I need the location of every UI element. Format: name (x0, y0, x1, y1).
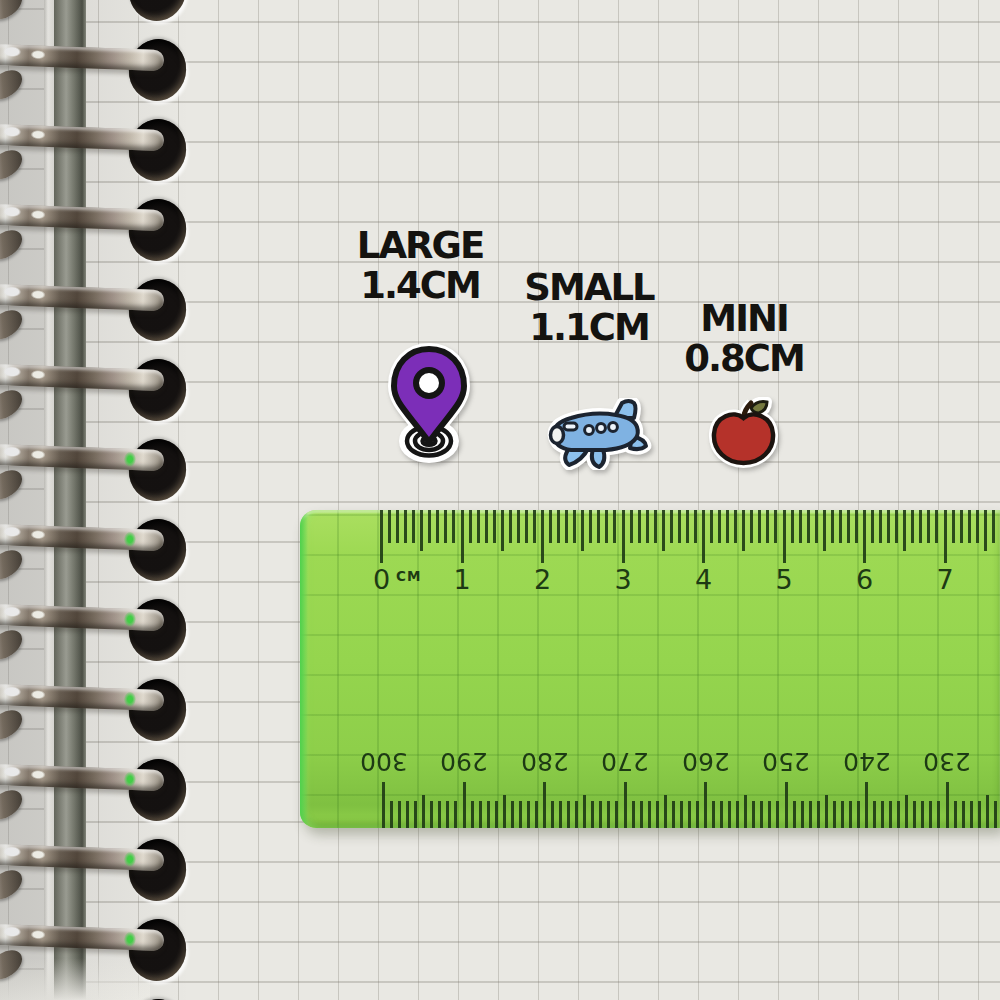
ruler-tick-top (758, 510, 761, 543)
ruler-tick-bottom (664, 795, 667, 828)
ruler-tick-bottom (495, 801, 498, 828)
ruler-tick-bottom (607, 801, 610, 828)
ruler-tick-bottom (704, 782, 707, 828)
ruler-tick-top (742, 510, 745, 551)
ruler-tick-bottom (583, 795, 586, 828)
ruler-tick-bottom (994, 801, 997, 828)
ruler-tick-bottom (728, 801, 731, 828)
ruler-tick-bottom (873, 801, 876, 828)
ruler-tick-bottom (833, 801, 836, 828)
ruler-tick-top (694, 510, 697, 543)
ruler-tick-bottom (825, 795, 828, 828)
ruler-tick-top (380, 510, 383, 563)
ruler-mm-number: 270 (593, 747, 657, 776)
ruler-tick-bottom (841, 801, 844, 828)
ruler-tick-top (887, 510, 890, 543)
ruler-tick-top (815, 510, 818, 543)
ruler-tick-top (903, 510, 906, 551)
ruler-tick-bottom (785, 782, 788, 828)
ruler-tick-bottom (986, 795, 989, 828)
apple-sticker (704, 397, 783, 471)
location-pin-sticker (383, 342, 475, 463)
green-ruler: 01234567 300290280270260250240230 CM (300, 510, 1000, 828)
ruler-tick-bottom (446, 801, 449, 828)
ruler-mm-number: 290 (432, 747, 496, 776)
ruler-tick-top (678, 510, 681, 543)
ruler-tick-top (871, 510, 874, 543)
size-name-small: SMALL (507, 268, 671, 308)
ruler-tick-top (935, 510, 938, 543)
ruler-tick-top (605, 510, 608, 543)
ruler-tick-top (750, 510, 753, 543)
ruler-tick-top (984, 510, 987, 551)
ruler-tick-bottom (809, 801, 812, 828)
ruler-mm-number: 250 (754, 747, 818, 776)
ruler-tick-bottom (905, 795, 908, 828)
ruler-tick-top (477, 510, 480, 543)
ruler-tick-top (493, 510, 496, 543)
ruler-cm-number: 3 (601, 564, 645, 595)
ruler-tick-top (847, 510, 850, 543)
ruler-tick-bottom (559, 801, 562, 828)
ruler-tick-bottom (624, 782, 627, 828)
ruler-tick-bottom (720, 801, 723, 828)
ruler-mm-number: 300 (352, 747, 416, 776)
ruler-tick-bottom (970, 801, 973, 828)
bottom-left-paper-edge (0, 958, 150, 1000)
ruler-tick-bottom (656, 801, 659, 828)
ruler-tick-bottom (414, 801, 417, 828)
ruler-tick-top (895, 510, 898, 543)
ruler-tick-top (799, 510, 802, 543)
ruler-tick-bottom (881, 801, 884, 828)
ruler-tick-bottom (865, 782, 868, 828)
airplane-icon (544, 398, 652, 470)
ruler-tick-top (839, 510, 842, 543)
ruler-tick-bottom (712, 801, 715, 828)
ruler-tick-top (469, 510, 472, 543)
ruler-tick-bottom (599, 801, 602, 828)
ruler-tick-top (404, 510, 407, 543)
ruler-tick-top (823, 510, 826, 551)
fuselage (553, 414, 638, 450)
size-name-mini: MINI (662, 299, 826, 339)
ruler-tick-top (485, 510, 488, 543)
ruler-tick-bottom (889, 801, 892, 828)
ruler-mm-number: 230 (915, 747, 979, 776)
ruler-tick-bottom (793, 801, 796, 828)
ruler-tick-top (509, 510, 512, 543)
ruler-tick-bottom (430, 801, 433, 828)
ruler-tick-bottom (454, 801, 457, 828)
ruler-tick-top (831, 510, 834, 543)
size-value-small: 1.1CM (507, 308, 671, 348)
ruler-tick-bottom (760, 801, 763, 828)
ruler-tick-top (557, 510, 560, 543)
ruler-tick-bottom (817, 801, 820, 828)
ruler-tick-bottom (519, 801, 522, 828)
ruler-tick-top (879, 510, 882, 543)
size-value-large: 1.4CM (338, 266, 502, 306)
ruler-tick-bottom (382, 782, 385, 828)
ruler-tick-bottom (535, 801, 538, 828)
ruler-tick-top (863, 510, 866, 563)
ruler-tick-top (960, 510, 963, 543)
ruler-tick-bottom (962, 801, 965, 828)
ruler-tick-top (726, 510, 729, 543)
ruler-unit-label: CM (396, 568, 421, 584)
ruler-tick-top (581, 510, 584, 551)
ruler-tick-top (662, 510, 665, 551)
ruler-tick-bottom (937, 801, 940, 828)
ruler-tick-top (911, 510, 914, 543)
ruler-tick-top (613, 510, 616, 543)
airplane-sticker (544, 398, 652, 470)
ruler-tick-bottom (471, 801, 474, 828)
ruler-tick-top (436, 510, 439, 543)
ruler-tick-bottom (527, 801, 530, 828)
ruler-tick-bottom (768, 801, 771, 828)
ruler-tick-top (461, 510, 464, 563)
cockpit-window (564, 423, 577, 430)
ruler-tick-bottom (591, 801, 594, 828)
ruler-tick-bottom (801, 801, 804, 828)
ruler-tick-top (919, 510, 922, 543)
ruler-tick-bottom (390, 801, 393, 828)
ruler-tick-bottom (672, 801, 675, 828)
ruler-tick-bottom (615, 801, 618, 828)
ruler-tick-bottom (543, 782, 546, 828)
ruler-tick-top (952, 510, 955, 543)
ruler-mm-number: 280 (513, 747, 577, 776)
notebook-photo: LARGE 1.4CM SMALL 1.1CM MINI 0.8CM (0, 0, 1000, 1000)
ruler-tick-bottom (487, 801, 490, 828)
ruler-tick-bottom (929, 801, 932, 828)
ruler-tick-top (533, 510, 536, 543)
ruler-tick-top (541, 510, 544, 563)
ruler-tick-bottom (921, 801, 924, 828)
ruler-tick-top (525, 510, 528, 543)
ruler-tick-top (710, 510, 713, 543)
ruler-tick-bottom (632, 801, 635, 828)
nose-cone (551, 427, 564, 444)
ruler-tick-top (791, 510, 794, 543)
ruler-tick-bottom (479, 801, 482, 828)
ruler-tick-top (718, 510, 721, 543)
ruler-tick-bottom (406, 801, 409, 828)
ruler-tick-top (976, 510, 979, 543)
size-name-large: LARGE (338, 226, 502, 266)
location-pin-icon (383, 342, 475, 463)
ruler-tick-bottom (567, 801, 570, 828)
ruler-tick-top (549, 510, 552, 543)
ruler-tick-top (638, 510, 641, 543)
ruler-tick-top (654, 510, 657, 543)
ruler-tick-bottom (696, 801, 699, 828)
ruler-tick-top (396, 510, 399, 543)
ruler-tick-bottom (422, 795, 425, 828)
ruler-tick-top (992, 510, 995, 543)
ruler-cm-number: 5 (762, 564, 806, 595)
ruler-tick-top (783, 510, 786, 563)
ruler-tick-top (702, 510, 705, 563)
ruler-tick-bottom (897, 801, 900, 828)
apple-icon (704, 397, 783, 471)
ruler-tick-top (412, 510, 415, 543)
ruler-tick-top (501, 510, 504, 551)
ruler-cm-number: 7 (923, 564, 967, 595)
ruler-tick-bottom (640, 801, 643, 828)
ruler-tick-top (622, 510, 625, 563)
ruler-tick-bottom (551, 801, 554, 828)
ruler-tick-bottom (857, 801, 860, 828)
ruler-tick-bottom (688, 801, 691, 828)
ruler-tick-top (944, 510, 947, 563)
ruler-tick-top (968, 510, 971, 543)
ruler-tick-top (452, 510, 455, 543)
ruler-cm-number: 6 (843, 564, 887, 595)
ruler-tick-bottom (946, 782, 949, 828)
ruler-tick-top (766, 510, 769, 543)
size-label-small: SMALL 1.1CM (507, 268, 671, 348)
ruler-cm-number: 4 (682, 564, 726, 595)
ruler-tick-bottom (463, 782, 466, 828)
ruler-tick-top (807, 510, 810, 543)
ruler-tick-bottom (503, 795, 506, 828)
ruler-tick-top (565, 510, 568, 543)
ruler-tick-bottom (744, 795, 747, 828)
ruler-tick-top (444, 510, 447, 543)
ruler-tick-top (855, 510, 858, 543)
ruler-tick-top (428, 510, 431, 543)
ruler-tick-top (646, 510, 649, 543)
ruler-tick-top (774, 510, 777, 543)
ruler-tick-top (597, 510, 600, 543)
ruler-tick-top (573, 510, 576, 543)
ruler-cm-number: 1 (440, 564, 484, 595)
ruler-tick-top (670, 510, 673, 543)
ruler-tick-bottom (954, 801, 957, 828)
ruler-tick-top (927, 510, 930, 543)
size-label-large: LARGE 1.4CM (338, 226, 502, 306)
ruler-tick-top (388, 510, 391, 543)
ruler-tick-bottom (776, 801, 779, 828)
ruler-tick-bottom (398, 801, 401, 828)
ruler-tick-bottom (849, 801, 852, 828)
ruler-tick-top (686, 510, 689, 543)
pin-hole (416, 370, 442, 396)
ruler-tick-bottom (680, 801, 683, 828)
ruler-tick-bottom (511, 801, 514, 828)
ruler-cm-number: 2 (521, 564, 565, 595)
ruler-tick-bottom (648, 801, 651, 828)
ruler-tick-bottom (736, 801, 739, 828)
ruler-mm-number: 260 (674, 747, 738, 776)
apple-body (714, 415, 773, 463)
ruler-tick-top (734, 510, 737, 543)
ruler-tick-top (630, 510, 633, 543)
ruler-tick-top (420, 510, 423, 551)
ruler-left-edge (300, 510, 308, 828)
ruler-tick-top (517, 510, 520, 543)
ruler-tick-bottom (913, 801, 916, 828)
ruler-mm-number: 240 (835, 747, 899, 776)
ruler-tick-top (589, 510, 592, 543)
ruler-tick-bottom (575, 801, 578, 828)
windows (585, 423, 618, 435)
ruler-tick-bottom (978, 801, 981, 828)
ruler-tick-bottom (752, 801, 755, 828)
size-label-mini: MINI 0.8CM (662, 299, 826, 379)
size-value-mini: 0.8CM (662, 339, 826, 379)
ruler-tick-bottom (438, 801, 441, 828)
